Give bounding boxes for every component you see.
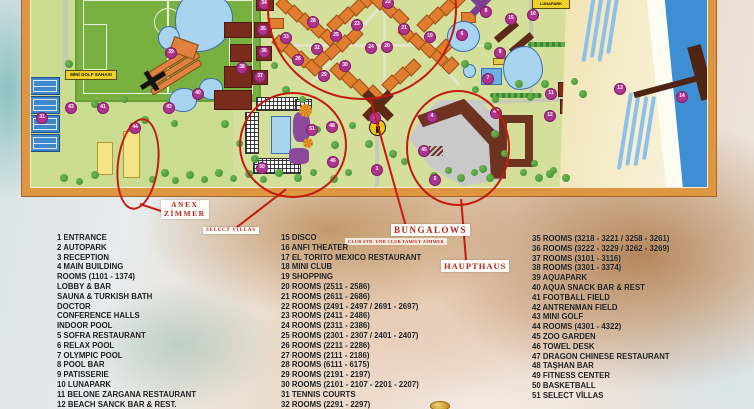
tree-icon (541, 80, 549, 88)
tree-icon (527, 94, 534, 101)
tree-icon (172, 177, 179, 184)
legend-entry: 27 ROOMS (2111 - 2186) (281, 351, 421, 361)
legend-entry: 46 TOWEL DESK (532, 342, 670, 352)
legend-entry: 50 BASKETBALL (532, 381, 670, 391)
tree-icon (271, 62, 278, 69)
legend-entry: 4 MAIN BUILDING (57, 262, 196, 272)
legend-entry: 7 OLYMPIC POOL (57, 351, 196, 361)
anex-building (97, 142, 113, 175)
legend-entry: 23 ROOMS (2411 - 2486) (281, 311, 421, 321)
legend-column-3: 35 ROOMS (3218 - 3221 / 3258 - 3261)36 R… (532, 234, 670, 401)
tree-icon (562, 174, 570, 182)
legend-entry: 10 LUNAPARK (57, 380, 196, 390)
legend-entry: 16 ANFI THEATER (281, 243, 421, 253)
field-penalty-left (83, 24, 107, 70)
tree-icon (201, 176, 208, 183)
annotation-circle-haupthaus (406, 90, 510, 206)
map-marker-39: 39 (165, 47, 177, 59)
annotation-circle-select-villas (239, 92, 347, 198)
partial-logo-icon (430, 401, 450, 409)
map-marker-1: 1 (371, 164, 383, 176)
tree-icon (531, 160, 538, 167)
map-marker-38: 38 (236, 62, 248, 74)
legend-entry: 29 ROOMS (2191 - 2197) (281, 370, 421, 380)
road (375, 128, 379, 187)
map-marker-42: 42 (163, 102, 175, 114)
legend-entry: 11 BELONE ZARGANA RESTAURANT (57, 390, 196, 400)
tree-icon (221, 120, 229, 128)
legend-entry: 21 ROOMS (2611 - 2686) (281, 292, 421, 302)
legend-entry: 28 ROOMS (6111 - 6175) (281, 360, 421, 370)
legend-column-1: 1 ENTRANCE2 AUTOPARK3 RECEPTION4 MAIN BU… (57, 233, 196, 409)
legend-entry: 12 BEACH SANCK BAR & REST. (57, 400, 196, 409)
building-block (230, 44, 252, 62)
map-marker-12: 12 (544, 110, 556, 122)
tree-icon (515, 80, 523, 88)
legend-entry: 26 ROOMS (2211 - 2286) (281, 341, 421, 351)
legend-entry: 22 ROOMS (2491 - 2497 / 2691 - 2697) (281, 302, 421, 312)
legend-entry: 37 ROOMS (3101 - 3116) (532, 254, 670, 264)
legend-entry: SAUNA & TURKISH BATH (57, 292, 196, 302)
map-marker-9: 9 (494, 47, 506, 59)
tennis-court (31, 134, 60, 152)
legend-entry: 2 AUTOPARK (57, 243, 196, 253)
legend-entry: 17 EL TORITO MEXICO RESTAURANT (281, 253, 421, 263)
map-marker-31: 31 (36, 112, 48, 124)
legend-entry: 31 TENNIS COURTS (281, 390, 421, 400)
legend-entry: 25 ROOMS (2301 - 2307 / 2401 - 2407) (281, 331, 421, 341)
legend-entry: 1 ENTRANCE (57, 233, 196, 243)
map-marker-37: 37 (254, 71, 266, 83)
legend-entry: LOBBY & BAR (57, 282, 196, 292)
legend-entry: 38 ROOMS (3301 - 3374) (532, 263, 670, 273)
legend-entry: 18 MINI CLUB (281, 262, 421, 272)
legend-entry: 6 RELAX POOL (57, 341, 196, 351)
tree-icon (186, 171, 194, 179)
anex-zimmer-label: ANEX ZİMMER (161, 200, 209, 219)
building-block (214, 90, 252, 110)
legend-entry: 9 PATISSERIE (57, 370, 196, 380)
legend-entry: CONFERENCE HALLS (57, 311, 196, 321)
tree-icon (349, 122, 356, 129)
map-marker-40: 40 (192, 88, 204, 100)
legend-entry: 42 ANTRENMAN FIELD (532, 303, 670, 313)
legend-entry: ROOMS (1101 - 1374) (57, 272, 196, 282)
map-marker-6: 6 (456, 29, 468, 41)
minigolf-area-label: MİNİ GOLF SAHASI (65, 70, 117, 80)
legend-entry: 32 ROOMS (2291 - 2297) (281, 400, 421, 409)
tree-icon (161, 169, 169, 177)
tree-icon (461, 60, 469, 68)
legend-entry: 39 AQUAPARK (532, 273, 670, 283)
tree-icon (546, 170, 554, 178)
tree-icon (121, 96, 128, 103)
legend-entry: 40 AQUA SNACK BAR & REST (532, 283, 670, 293)
legend-entry: 48 TAŞHAN BAR (532, 361, 670, 371)
tree-icon (65, 60, 73, 68)
tree-icon (76, 178, 83, 185)
tree-icon (579, 90, 587, 98)
legend-column-2: 15 DISCO16 ANFI THEATER17 EL TORITO MEXI… (281, 233, 421, 409)
tennis-court (31, 96, 60, 114)
tree-icon (60, 174, 68, 182)
tree-icon (171, 120, 178, 127)
tree-icon (520, 169, 527, 176)
map-marker-43: 43 (65, 102, 77, 114)
tree-icon (91, 171, 99, 179)
tree-icon (230, 175, 237, 182)
legend-entry: 15 DISCO (281, 233, 421, 243)
haupthaus-label: HAUPTHAUS (441, 260, 509, 272)
map-marker-7: 7 (482, 73, 494, 85)
tree-icon (345, 169, 352, 176)
legend-entry: 35 ROOMS (3218 - 3221 / 3258 - 3261) (532, 234, 670, 244)
select-villas-label: SELECT VILLAS (203, 227, 259, 234)
map-marker-35: 35 (257, 24, 269, 36)
legend-entry: 20 ROOMS (2511 - 2586) (281, 282, 421, 292)
map-marker-36: 36 (258, 46, 270, 58)
tree-icon (571, 78, 578, 85)
map-marker-13: 13 (614, 83, 626, 95)
map-marker-41: 41 (97, 102, 109, 114)
legend-entry: 45 ZOO GARDEN (532, 332, 670, 342)
legend-entry: 43 MINI GOLF (532, 312, 670, 322)
legend-entry: 5 SOFRA RESTAURANT (57, 331, 196, 341)
map-marker-11: 11 (545, 88, 557, 100)
legend-entry: 8 POOL BAR (57, 360, 196, 370)
legend-entry: 51 SELECT VİLLAS (532, 391, 670, 401)
legend-entry: 3 RECEPTION (57, 253, 196, 263)
tree-icon (484, 42, 492, 50)
legend-entry: 24 ROOMS (2311 - 2386) (281, 321, 421, 331)
legend-entry: 44 ROOMS (4301 - 4322) (532, 322, 670, 332)
tree-icon (365, 140, 373, 148)
anex-zimmer-line2: ZİMMER (164, 210, 206, 219)
relax-pool (503, 46, 543, 90)
resort-map-page: MİNİ GOLF SAHASI (0, 0, 754, 409)
legend-entry: DOCTOR (57, 302, 196, 312)
tree-icon (492, 96, 499, 103)
tennis-court (31, 77, 60, 95)
legend-entry: INDOOR POOL (57, 321, 196, 331)
map-marker-8: 8 (480, 6, 492, 18)
map-marker-10: 10 (527, 9, 539, 21)
tree-icon (215, 169, 223, 177)
legend-entry: 41 FOOTBALL FIELD (532, 293, 670, 303)
tree-icon (389, 150, 397, 158)
map-marker-14: 14 (676, 91, 688, 103)
legend-entry: 49 FITNESS CENTER (532, 371, 670, 381)
legend-entry: 30 ROOMS (2101 - 2107 - 2201 - 2207) (281, 380, 421, 390)
legend-entry: 19 SHOPPING (281, 272, 421, 282)
lunapark-area-label: LUNAPARK (532, 0, 570, 9)
building-block (224, 22, 252, 38)
legend-entry: 36 ROOMS (3222 - 3229 / 3262 - 3269) (532, 244, 670, 254)
legend-entry: 47 DRAGON CHINESE RESTAURANT (532, 352, 670, 362)
tree-icon (535, 174, 543, 182)
map-marker-15: 15 (505, 13, 517, 25)
